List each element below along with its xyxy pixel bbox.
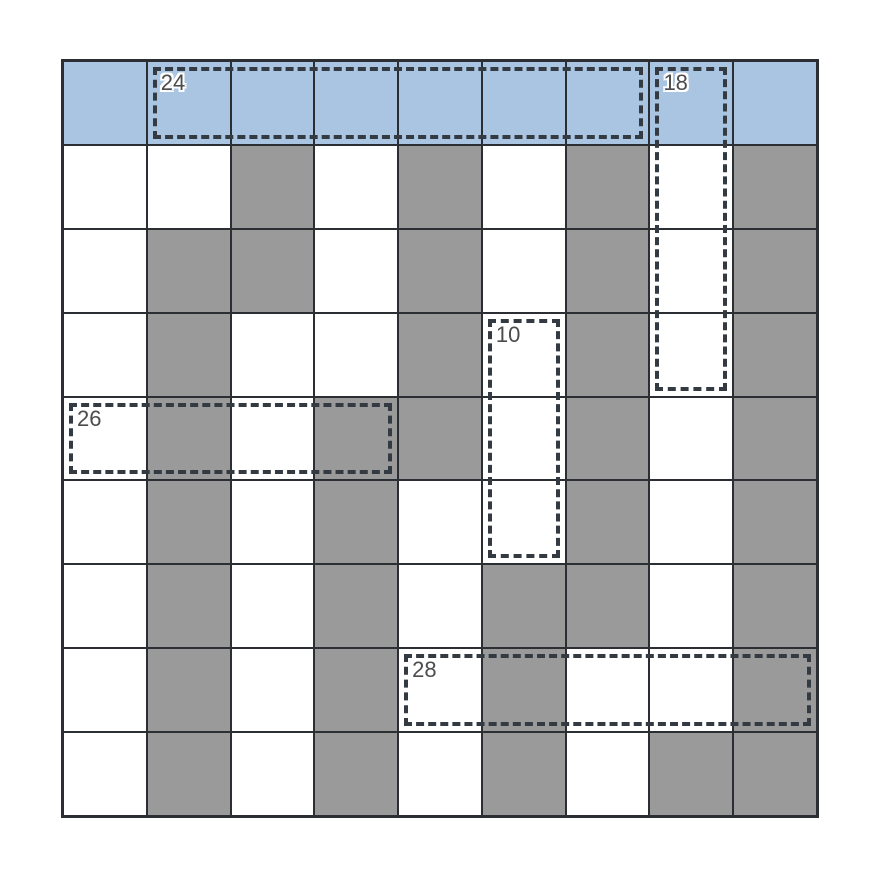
cell-r3-c5-white-cell[interactable] [483, 314, 565, 396]
cell-r8-c8-gray-cell[interactable] [734, 733, 816, 815]
cell-r4-c2-white-cell[interactable] [232, 398, 314, 480]
cell-r2-c3-white-cell[interactable] [315, 230, 397, 312]
cell-r5-c1-gray-cell[interactable] [148, 481, 230, 563]
cell-r6-c5-gray-cell[interactable] [483, 565, 565, 647]
cell-r5-c5-white-cell[interactable] [483, 481, 565, 563]
cell-r5-c4-white-cell[interactable] [399, 481, 481, 563]
cell-r4-c6-gray-cell[interactable] [567, 398, 649, 480]
cell-r4-c4-gray-cell[interactable] [399, 398, 481, 480]
cell-r2-c5-white-cell[interactable] [483, 230, 565, 312]
cell-r4-c0-white-cell[interactable] [64, 398, 146, 480]
cell-r7-c3-gray-cell[interactable] [315, 649, 397, 731]
cell-r6-c1-gray-cell[interactable] [148, 565, 230, 647]
cell-r0-c1-blue-cell[interactable] [148, 62, 230, 144]
cell-r7-c8-gray-cell[interactable] [734, 649, 816, 731]
cell-r3-c4-gray-cell[interactable] [399, 314, 481, 396]
cell-r2-c7-white-cell[interactable] [650, 230, 732, 312]
cell-r3-c7-white-cell[interactable] [650, 314, 732, 396]
cell-r6-c3-gray-cell[interactable] [315, 565, 397, 647]
cell-r6-c4-white-cell[interactable] [399, 565, 481, 647]
cell-r4-c5-white-cell[interactable] [483, 398, 565, 480]
cell-r1-c8-gray-cell[interactable] [734, 146, 816, 228]
cell-r1-c0-white-cell[interactable] [64, 146, 146, 228]
cell-r3-c1-gray-cell[interactable] [148, 314, 230, 396]
cell-r0-c8-blue-cell[interactable] [734, 62, 816, 144]
cell-r1-c1-white-cell[interactable] [148, 146, 230, 228]
cell-r0-c0-blue-cell[interactable] [64, 62, 146, 144]
cell-r8-c0-white-cell[interactable] [64, 733, 146, 815]
cell-r8-c4-white-cell[interactable] [399, 733, 481, 815]
cell-r3-c8-gray-cell[interactable] [734, 314, 816, 396]
cell-r1-c3-white-cell[interactable] [315, 146, 397, 228]
cell-r2-c6-gray-cell[interactable] [567, 230, 649, 312]
cell-r2-c8-gray-cell[interactable] [734, 230, 816, 312]
cell-r8-c7-gray-cell[interactable] [650, 733, 732, 815]
cell-r2-c0-white-cell[interactable] [64, 230, 146, 312]
cell-r2-c4-gray-cell[interactable] [399, 230, 481, 312]
cell-r0-c5-blue-cell[interactable] [483, 62, 565, 144]
cell-r7-c4-white-cell[interactable] [399, 649, 481, 731]
cell-r3-c0-white-cell[interactable] [64, 314, 146, 396]
cell-r8-c2-white-cell[interactable] [232, 733, 314, 815]
cell-r8-c1-gray-cell[interactable] [148, 733, 230, 815]
cell-r6-c2-white-cell[interactable] [232, 565, 314, 647]
cell-r2-c2-gray-cell[interactable] [232, 230, 314, 312]
cell-r5-c2-white-cell[interactable] [232, 481, 314, 563]
cell-r5-c3-gray-cell[interactable] [315, 481, 397, 563]
cell-r4-c3-gray-cell[interactable] [315, 398, 397, 480]
puzzle-page: 2418102628 [0, 0, 881, 881]
cell-r5-c7-white-cell[interactable] [650, 481, 732, 563]
cell-r7-c5-gray-cell[interactable] [483, 649, 565, 731]
cell-r1-c6-gray-cell[interactable] [567, 146, 649, 228]
cell-r4-c8-gray-cell[interactable] [734, 398, 816, 480]
cell-r5-c8-gray-cell[interactable] [734, 481, 816, 563]
cell-r1-c7-white-cell[interactable] [650, 146, 732, 228]
cell-r6-c7-white-cell[interactable] [650, 565, 732, 647]
cell-r1-c2-gray-cell[interactable] [232, 146, 314, 228]
cell-r0-c6-blue-cell[interactable] [567, 62, 649, 144]
cell-r1-c4-gray-cell[interactable] [399, 146, 481, 228]
cell-r6-c8-gray-cell[interactable] [734, 565, 816, 647]
cell-r7-c2-white-cell[interactable] [232, 649, 314, 731]
cell-r3-c2-white-cell[interactable] [232, 314, 314, 396]
cell-r6-c6-gray-cell[interactable] [567, 565, 649, 647]
cell-r5-c6-gray-cell[interactable] [567, 481, 649, 563]
cell-r4-c7-white-cell[interactable] [650, 398, 732, 480]
cell-r6-c0-white-cell[interactable] [64, 565, 146, 647]
cell-r1-c5-white-cell[interactable] [483, 146, 565, 228]
cell-r3-c6-gray-cell[interactable] [567, 314, 649, 396]
cell-r4-c1-gray-cell[interactable] [148, 398, 230, 480]
cell-r0-c4-blue-cell[interactable] [399, 62, 481, 144]
cell-r5-c0-white-cell[interactable] [64, 481, 146, 563]
cell-r8-c3-gray-cell[interactable] [315, 733, 397, 815]
cell-r0-c7-blue-cell[interactable] [650, 62, 732, 144]
cell-r8-c5-gray-cell[interactable] [483, 733, 565, 815]
cell-r2-c1-gray-cell[interactable] [148, 230, 230, 312]
cell-r7-c0-white-cell[interactable] [64, 649, 146, 731]
cell-r0-c3-blue-cell[interactable] [315, 62, 397, 144]
cell-r7-c7-white-cell[interactable] [650, 649, 732, 731]
puzzle-grid: 2418102628 [61, 59, 819, 818]
cell-r7-c6-white-cell[interactable] [567, 649, 649, 731]
cell-r3-c3-white-cell[interactable] [315, 314, 397, 396]
cell-r0-c2-blue-cell[interactable] [232, 62, 314, 144]
cell-r8-c6-white-cell[interactable] [567, 733, 649, 815]
cell-r7-c1-gray-cell[interactable] [148, 649, 230, 731]
